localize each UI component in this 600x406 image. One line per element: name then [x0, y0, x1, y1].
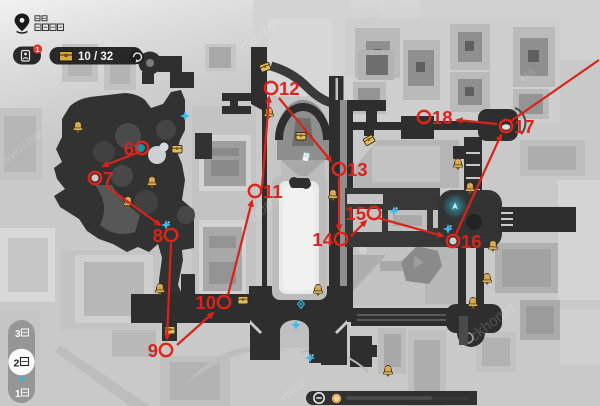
svg-text:10 / 32: 10 / 32: [78, 51, 113, 63]
svg-text:10: 10: [195, 292, 216, 313]
svg-text:12: 12: [279, 78, 300, 99]
svg-text:18: 18: [432, 107, 453, 128]
svg-text:16: 16: [461, 231, 482, 252]
svg-text:11: 11: [263, 181, 283, 202]
svg-text:2: 2: [14, 358, 20, 370]
svg-text:3: 3: [15, 329, 21, 340]
svg-text:6: 6: [124, 138, 134, 159]
svg-text:7: 7: [103, 168, 113, 189]
svg-text:1: 1: [35, 45, 39, 54]
svg-text:13: 13: [347, 159, 368, 180]
svg-text:14: 14: [312, 229, 333, 250]
svg-text:1: 1: [15, 389, 21, 400]
svg-text:9: 9: [148, 340, 158, 361]
svg-text:17: 17: [514, 116, 535, 137]
svg-text:8: 8: [153, 225, 163, 246]
svg-text:15: 15: [345, 203, 366, 224]
